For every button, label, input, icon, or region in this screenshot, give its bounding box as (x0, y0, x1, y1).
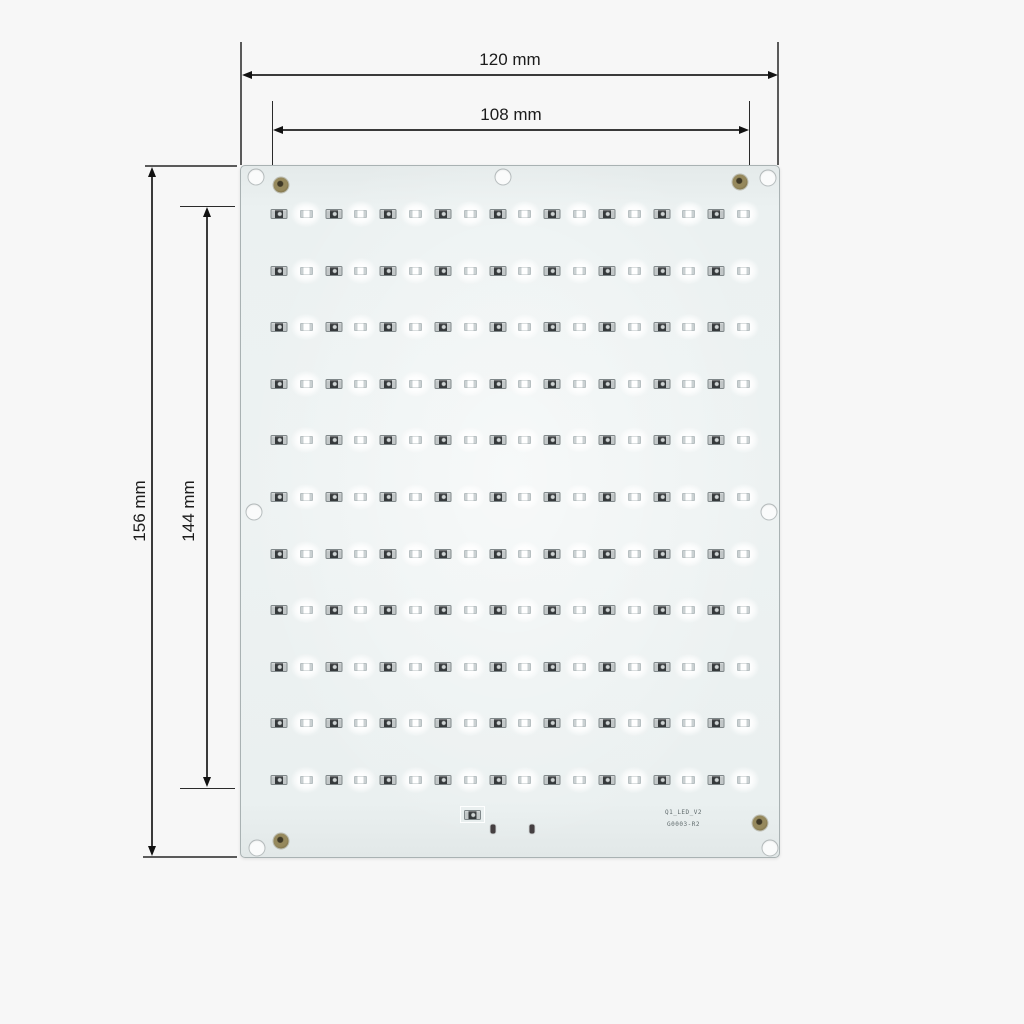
led (346, 314, 376, 340)
led-package (518, 663, 531, 671)
led (674, 258, 704, 284)
led-package (518, 380, 531, 388)
led-package (628, 663, 641, 671)
led (455, 201, 485, 227)
led (565, 371, 595, 397)
led (619, 258, 649, 284)
led (401, 427, 431, 453)
dimension-label-outer-height: 156 mm (129, 471, 151, 551)
led (455, 427, 485, 453)
led-package (409, 719, 422, 727)
led-package (409, 550, 422, 558)
resistor (489, 379, 506, 389)
led-package (354, 210, 367, 218)
dimension-label-inner-width: 108 mm (272, 104, 750, 126)
led (565, 201, 595, 227)
led-package (737, 493, 750, 501)
fiducial-dot (753, 816, 768, 831)
resistor (271, 662, 288, 672)
led (291, 484, 321, 510)
resistor (598, 322, 615, 332)
resistor (325, 492, 342, 502)
resistor (598, 775, 615, 785)
fiducial-dot (733, 175, 748, 190)
led (619, 371, 649, 397)
led-package (300, 380, 313, 388)
resistor (653, 322, 670, 332)
led-package (573, 550, 586, 558)
led-package (628, 606, 641, 614)
resistor (489, 322, 506, 332)
led (291, 710, 321, 736)
led (674, 427, 704, 453)
led-package (628, 267, 641, 275)
resistor (271, 266, 288, 276)
resistor (544, 718, 561, 728)
led (510, 314, 540, 340)
resistor (380, 322, 397, 332)
led (455, 710, 485, 736)
dimension-line (151, 173, 153, 849)
resistor (653, 775, 670, 785)
resistor (598, 209, 615, 219)
silkscreen-line2: G0003-R2 (636, 819, 731, 831)
led (565, 427, 595, 453)
resistor (708, 662, 725, 672)
led (674, 541, 704, 567)
led (455, 258, 485, 284)
led (401, 314, 431, 340)
led-package (518, 436, 531, 444)
bottom-resistor-outline (460, 806, 485, 823)
led-package (682, 436, 695, 444)
resistor (653, 662, 670, 672)
led-package (737, 436, 750, 444)
led (455, 597, 485, 623)
led-package (737, 380, 750, 388)
led (455, 484, 485, 510)
led (401, 767, 431, 793)
extension-line (145, 165, 237, 167)
led-package (409, 663, 422, 671)
resistor (544, 662, 561, 672)
fiducial-dot (274, 178, 289, 193)
led (565, 258, 595, 284)
silkscreen-text: Q1_LED_V2 G0003-R2 (636, 807, 731, 831)
led (674, 597, 704, 623)
led (291, 654, 321, 680)
led (565, 314, 595, 340)
mounting-hole (495, 169, 512, 186)
led-package (628, 550, 641, 558)
resistor (434, 435, 451, 445)
resistor (708, 379, 725, 389)
resistor (598, 718, 615, 728)
led-package (300, 267, 313, 275)
led-package (573, 776, 586, 784)
led-package (682, 493, 695, 501)
resistor (708, 435, 725, 445)
resistor (380, 662, 397, 672)
led (619, 654, 649, 680)
resistor (325, 379, 342, 389)
resistor (271, 605, 288, 615)
resistor (598, 379, 615, 389)
led-package (573, 380, 586, 388)
led-package (409, 776, 422, 784)
led (401, 654, 431, 680)
led (455, 541, 485, 567)
led (510, 597, 540, 623)
led-package (354, 323, 367, 331)
led-package (464, 267, 477, 275)
led (510, 427, 540, 453)
led-package (300, 550, 313, 558)
led (565, 597, 595, 623)
led-package (573, 663, 586, 671)
resistor (325, 266, 342, 276)
dimension-label-outer-width: 120 mm (240, 49, 780, 71)
led (565, 767, 595, 793)
led (401, 597, 431, 623)
resistor (598, 435, 615, 445)
led (565, 654, 595, 680)
led (346, 258, 376, 284)
led-package (518, 776, 531, 784)
resistor (653, 266, 670, 276)
led-package (628, 776, 641, 784)
led-package (573, 719, 586, 727)
resistor (708, 549, 725, 559)
led-package (464, 663, 477, 671)
mounting-hole (246, 504, 263, 521)
led (346, 201, 376, 227)
led (729, 314, 759, 340)
led-package (682, 606, 695, 614)
led (510, 541, 540, 567)
led (674, 484, 704, 510)
led (291, 371, 321, 397)
led (619, 541, 649, 567)
led (291, 597, 321, 623)
led (729, 484, 759, 510)
resistor (271, 775, 288, 785)
arrowhead-right-icon (739, 126, 749, 134)
led (291, 541, 321, 567)
led-package (409, 323, 422, 331)
led-package (300, 663, 313, 671)
resistor (434, 775, 451, 785)
led-package (682, 719, 695, 727)
resistor (464, 810, 481, 820)
resistor (653, 379, 670, 389)
led-package (354, 550, 367, 558)
led (729, 654, 759, 680)
resistor (489, 662, 506, 672)
led (565, 541, 595, 567)
led (291, 427, 321, 453)
led (729, 767, 759, 793)
resistor (489, 775, 506, 785)
resistor (434, 718, 451, 728)
resistor (434, 492, 451, 502)
resistor (489, 266, 506, 276)
led-package (628, 210, 641, 218)
resistor (708, 209, 725, 219)
resistor (544, 322, 561, 332)
resistor (434, 266, 451, 276)
resistor (380, 266, 397, 276)
led (455, 314, 485, 340)
resistor (380, 718, 397, 728)
resistor (325, 209, 342, 219)
led (455, 767, 485, 793)
led-package (518, 606, 531, 614)
led-package (300, 436, 313, 444)
led-package (737, 323, 750, 331)
resistor (544, 775, 561, 785)
led (729, 427, 759, 453)
resistor (708, 718, 725, 728)
resistor (708, 322, 725, 332)
led-package (737, 776, 750, 784)
fiducial-dot (274, 834, 289, 849)
resistor (653, 435, 670, 445)
led-package (464, 323, 477, 331)
resistor (544, 209, 561, 219)
resistor (598, 549, 615, 559)
resistor (271, 322, 288, 332)
led-package (682, 550, 695, 558)
led (619, 427, 649, 453)
resistor (380, 209, 397, 219)
resistor (489, 549, 506, 559)
led-package (464, 380, 477, 388)
resistor (489, 718, 506, 728)
led (401, 484, 431, 510)
led (674, 767, 704, 793)
resistor (653, 605, 670, 615)
resistor (653, 492, 670, 502)
led-package (682, 323, 695, 331)
led-package (518, 267, 531, 275)
resistor (653, 718, 670, 728)
led (291, 258, 321, 284)
led-package (354, 493, 367, 501)
led-package (354, 663, 367, 671)
resistor (598, 662, 615, 672)
led (510, 654, 540, 680)
resistor (434, 379, 451, 389)
resistor (434, 662, 451, 672)
led-package (682, 267, 695, 275)
led (619, 597, 649, 623)
resistor (434, 605, 451, 615)
dimension-line (246, 74, 774, 76)
resistor (708, 775, 725, 785)
led (510, 371, 540, 397)
led (619, 484, 649, 510)
led (346, 597, 376, 623)
led-package (354, 267, 367, 275)
led-package (737, 606, 750, 614)
resistor (380, 379, 397, 389)
led (401, 541, 431, 567)
led (346, 371, 376, 397)
resistor (325, 322, 342, 332)
resistor (598, 266, 615, 276)
led-package (354, 380, 367, 388)
led (729, 710, 759, 736)
led-package (300, 493, 313, 501)
led-package (573, 493, 586, 501)
resistor (489, 435, 506, 445)
resistor (325, 718, 342, 728)
led-package (737, 719, 750, 727)
mounting-hole (761, 504, 778, 521)
led (510, 484, 540, 510)
led-package (737, 550, 750, 558)
resistor (325, 605, 342, 615)
led-package (300, 719, 313, 727)
led-package (518, 493, 531, 501)
led-package (300, 210, 313, 218)
led-package (628, 323, 641, 331)
mounting-hole (249, 840, 266, 857)
led-package (737, 663, 750, 671)
led-package (464, 550, 477, 558)
mounting-hole (760, 170, 777, 187)
led-package (409, 210, 422, 218)
resistor (653, 209, 670, 219)
led-package (409, 606, 422, 614)
resistor (544, 549, 561, 559)
led (455, 371, 485, 397)
led-package (682, 663, 695, 671)
led-package (354, 719, 367, 727)
arrowhead-down-icon (203, 777, 211, 787)
resistor (271, 492, 288, 502)
led (729, 371, 759, 397)
led-package (409, 493, 422, 501)
resistor (598, 605, 615, 615)
led-package (628, 436, 641, 444)
solder-pad (491, 825, 496, 834)
led (510, 710, 540, 736)
led (510, 767, 540, 793)
led (674, 314, 704, 340)
led-package (573, 210, 586, 218)
led (674, 654, 704, 680)
led-package (464, 493, 477, 501)
led (346, 427, 376, 453)
led (346, 654, 376, 680)
led-package (300, 776, 313, 784)
led (729, 258, 759, 284)
led-package (409, 267, 422, 275)
led-package (300, 606, 313, 614)
solder-pad (530, 825, 535, 834)
dimension-line (206, 212, 208, 783)
led (291, 201, 321, 227)
led-package (354, 606, 367, 614)
led (401, 201, 431, 227)
resistor (271, 209, 288, 219)
resistor (325, 775, 342, 785)
resistor (544, 266, 561, 276)
resistor (544, 605, 561, 615)
resistor (544, 492, 561, 502)
led (346, 767, 376, 793)
resistor (653, 549, 670, 559)
led (619, 201, 649, 227)
led-package (354, 776, 367, 784)
arrowhead-right-icon (768, 71, 778, 79)
led (619, 314, 649, 340)
resistor (380, 435, 397, 445)
led (510, 201, 540, 227)
led (674, 371, 704, 397)
resistor (271, 718, 288, 728)
dimension-label-inner-height: 144 mm (178, 471, 200, 551)
led (674, 710, 704, 736)
led-package (682, 210, 695, 218)
led-package (518, 550, 531, 558)
led-package (518, 719, 531, 727)
resistor (271, 379, 288, 389)
resistor (380, 492, 397, 502)
extension-line (180, 788, 235, 789)
dimension-drawing: Q1_LED_V2 G0003-R2 120 mm 108 mm 156 mm (0, 0, 1024, 1024)
led (619, 710, 649, 736)
led-package (518, 210, 531, 218)
led-package (409, 380, 422, 388)
led (401, 258, 431, 284)
resistor (434, 549, 451, 559)
resistor (598, 492, 615, 502)
led (346, 541, 376, 567)
led-package (682, 776, 695, 784)
led-package (409, 436, 422, 444)
resistor (708, 605, 725, 615)
mounting-hole (762, 840, 779, 857)
led (455, 654, 485, 680)
led (729, 597, 759, 623)
arrowhead-left-icon (242, 71, 252, 79)
led (291, 314, 321, 340)
led (510, 258, 540, 284)
resistor (380, 605, 397, 615)
led-package (518, 323, 531, 331)
led-package (464, 776, 477, 784)
resistor (489, 605, 506, 615)
led-package (464, 719, 477, 727)
resistor (325, 549, 342, 559)
resistor (325, 435, 342, 445)
led-package (300, 323, 313, 331)
led-package (573, 267, 586, 275)
pcb-board: Q1_LED_V2 G0003-R2 (240, 165, 780, 858)
led-package (464, 210, 477, 218)
resistor (489, 492, 506, 502)
led-package (628, 719, 641, 727)
led (401, 710, 431, 736)
led (729, 201, 759, 227)
led-package (682, 380, 695, 388)
led (674, 201, 704, 227)
resistor (434, 322, 451, 332)
resistor (380, 549, 397, 559)
